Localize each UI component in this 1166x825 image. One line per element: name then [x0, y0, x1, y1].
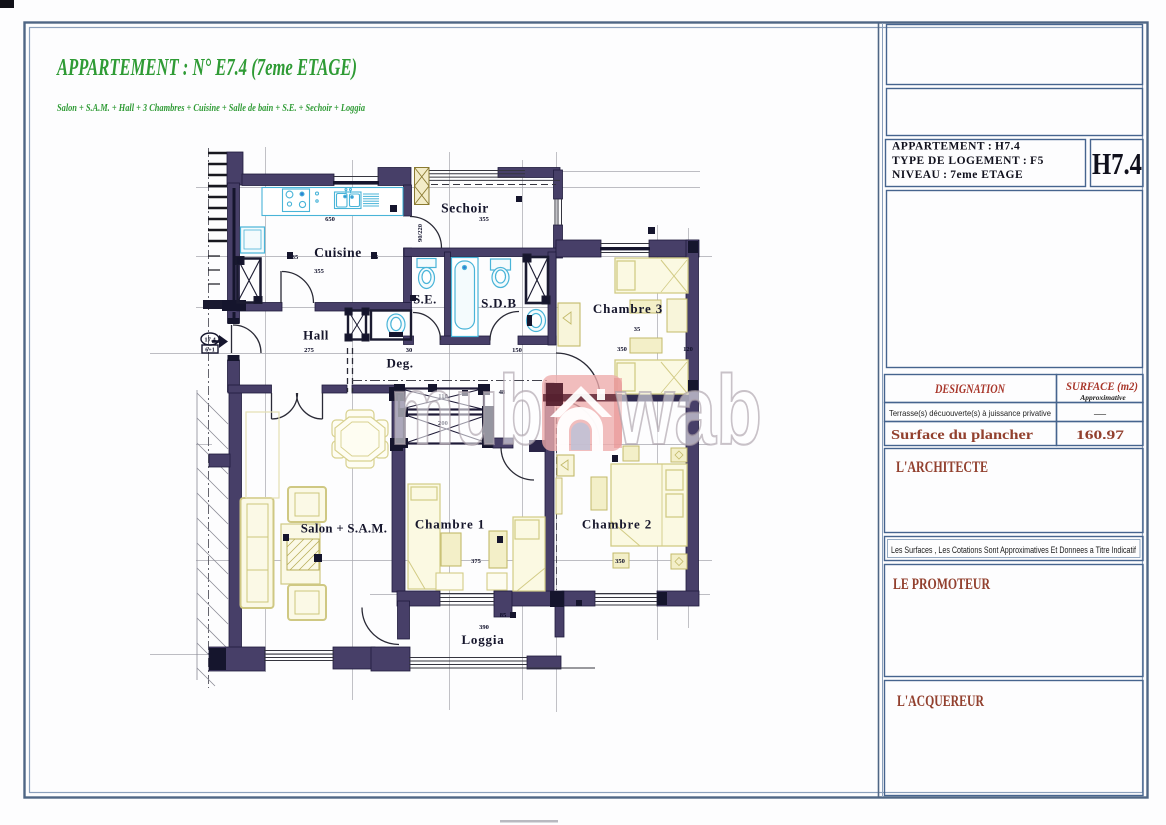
svg-text:NIVEAU : 7eme ETAGE: NIVEAU : 7eme ETAGE	[892, 169, 1023, 181]
svg-text:120: 120	[683, 346, 693, 353]
svg-text:350: 350	[615, 558, 625, 565]
svg-text:390: 390	[479, 624, 489, 631]
svg-text:wab: wab	[615, 355, 762, 465]
svg-text:30: 30	[406, 347, 413, 354]
svg-text:Les Surfaces , Les Cotations S: Les Surfaces , Les Cotations Sont Approx…	[891, 545, 1136, 555]
svg-text:S.E.: S.E.	[413, 293, 437, 307]
svg-text:Approximative: Approximative	[1079, 393, 1126, 402]
svg-text:TYPE DE LOGEMENT : F5: TYPE DE LOGEMENT : F5	[892, 155, 1044, 167]
svg-text:L'ACQUEREUR: L'ACQUEREUR	[897, 693, 985, 710]
svg-text:355: 355	[479, 216, 490, 223]
svg-text:Cuisine: Cuisine	[314, 245, 362, 260]
svg-text:Surface du plancher: Surface du plancher	[891, 427, 1033, 442]
svg-text:APPARTEMENT : N° E7.4 (7eme ET: APPARTEMENT : N° E7.4 (7eme ETAGE)	[56, 55, 357, 81]
svg-text:Salon + S.A.M. + Hall + 3 Cham: Salon + S.A.M. + Hall + 3 Chambres + Cui…	[57, 102, 365, 114]
svg-text:150: 150	[512, 347, 522, 354]
svg-text:355: 355	[314, 268, 325, 275]
svg-text:S.D.B: S.D.B	[481, 296, 517, 311]
svg-text:H7.4: H7.4	[1092, 146, 1142, 181]
svg-text:650: 650	[325, 216, 335, 223]
svg-text:Hall: Hall	[303, 328, 329, 343]
svg-text:—: —	[1093, 406, 1107, 420]
svg-text:350: 350	[617, 346, 627, 353]
svg-text:17.4: 17.4	[204, 337, 216, 344]
svg-text:L'ARCHITECTE: L'ARCHITECTE	[896, 459, 988, 476]
svg-text:Chambre 1: Chambre 1	[415, 517, 485, 532]
svg-text:90/220: 90/220	[417, 224, 424, 242]
svg-text:Terrasse(s) décuouverte(s) à j: Terrasse(s) décuouverte(s) à juissance p…	[889, 408, 1051, 418]
svg-text:6+1: 6+1	[205, 348, 214, 354]
svg-text:SURFACE (m2): SURFACE (m2)	[1066, 379, 1138, 393]
svg-text:mub: mub	[390, 355, 543, 465]
svg-text:85: 85	[500, 612, 507, 619]
svg-text:Chambre 3: Chambre 3	[593, 301, 663, 316]
svg-text:LE PROMOTEUR: LE PROMOTEUR	[893, 576, 991, 593]
svg-text:Loggia: Loggia	[461, 632, 504, 647]
svg-text:Chambre 2: Chambre 2	[582, 517, 652, 532]
svg-text:275: 275	[304, 347, 315, 354]
svg-text:Salon + S.A.M.: Salon + S.A.M.	[301, 522, 388, 536]
svg-text:160.97: 160.97	[1076, 427, 1125, 442]
svg-text:Sechoir: Sechoir	[441, 201, 489, 216]
svg-text:375: 375	[471, 558, 482, 565]
svg-text:DESIGNATION: DESIGNATION	[934, 381, 1005, 396]
svg-text:35: 35	[634, 326, 641, 333]
svg-text:APPARTEMENT : H7.4: APPARTEMENT : H7.4	[892, 141, 1020, 153]
